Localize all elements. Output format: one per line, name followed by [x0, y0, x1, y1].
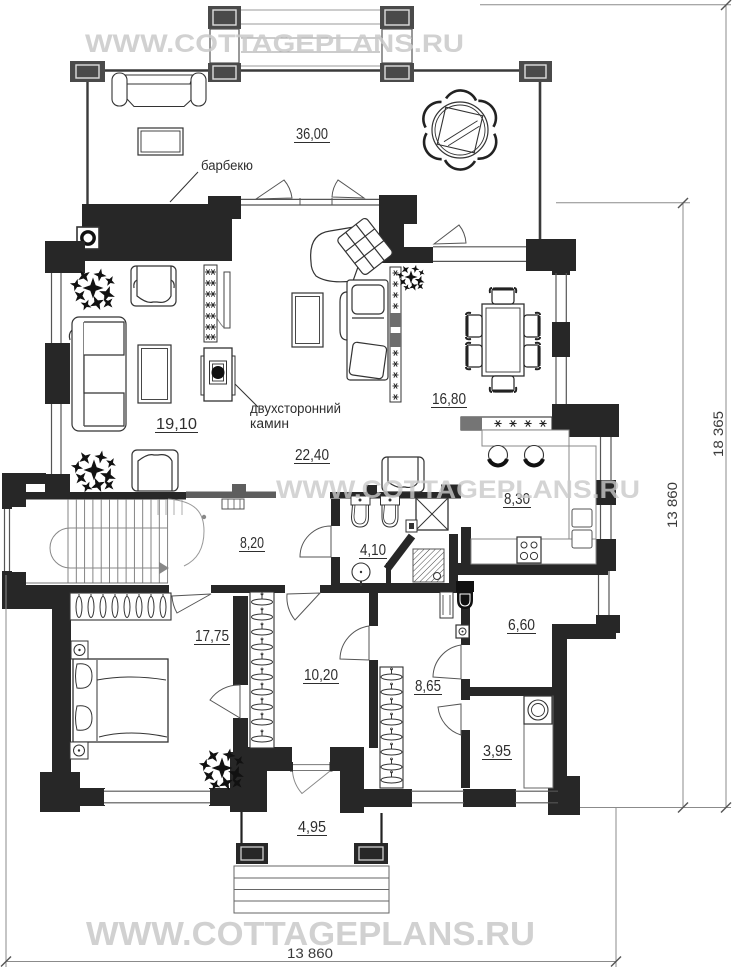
svg-text:18 365: 18 365 — [710, 411, 726, 457]
svg-text:16,80: 16,80 — [432, 391, 466, 408]
svg-text:3,95: 3,95 — [483, 743, 511, 760]
svg-text:10,20: 10,20 — [304, 667, 338, 684]
svg-text:6,60: 6,60 — [508, 617, 535, 634]
svg-text:WWW.COTTAGEPLANS.RU: WWW.COTTAGEPLANS.RU — [85, 30, 464, 58]
svg-text:19,10: 19,10 — [156, 416, 197, 433]
svg-text:барбекю: барбекю — [201, 158, 253, 173]
svg-text:17,75: 17,75 — [195, 628, 229, 645]
svg-text:8,20: 8,20 — [240, 535, 264, 552]
svg-text:13 860: 13 860 — [664, 482, 680, 528]
svg-text:двухсторонний: двухсторонний — [250, 401, 341, 416]
svg-text:камин: камин — [250, 416, 289, 431]
svg-text:36,00: 36,00 — [296, 126, 328, 143]
svg-text:4,10: 4,10 — [360, 542, 386, 559]
svg-text:4,95: 4,95 — [298, 819, 326, 836]
svg-text:8,65: 8,65 — [415, 678, 441, 695]
svg-text:22,40: 22,40 — [295, 447, 329, 464]
svg-text:WWW.COTTAGEPLANS.RU: WWW.COTTAGEPLANS.RU — [276, 476, 640, 504]
svg-text:WWW.COTTAGEPLANS.RU: WWW.COTTAGEPLANS.RU — [86, 915, 535, 952]
